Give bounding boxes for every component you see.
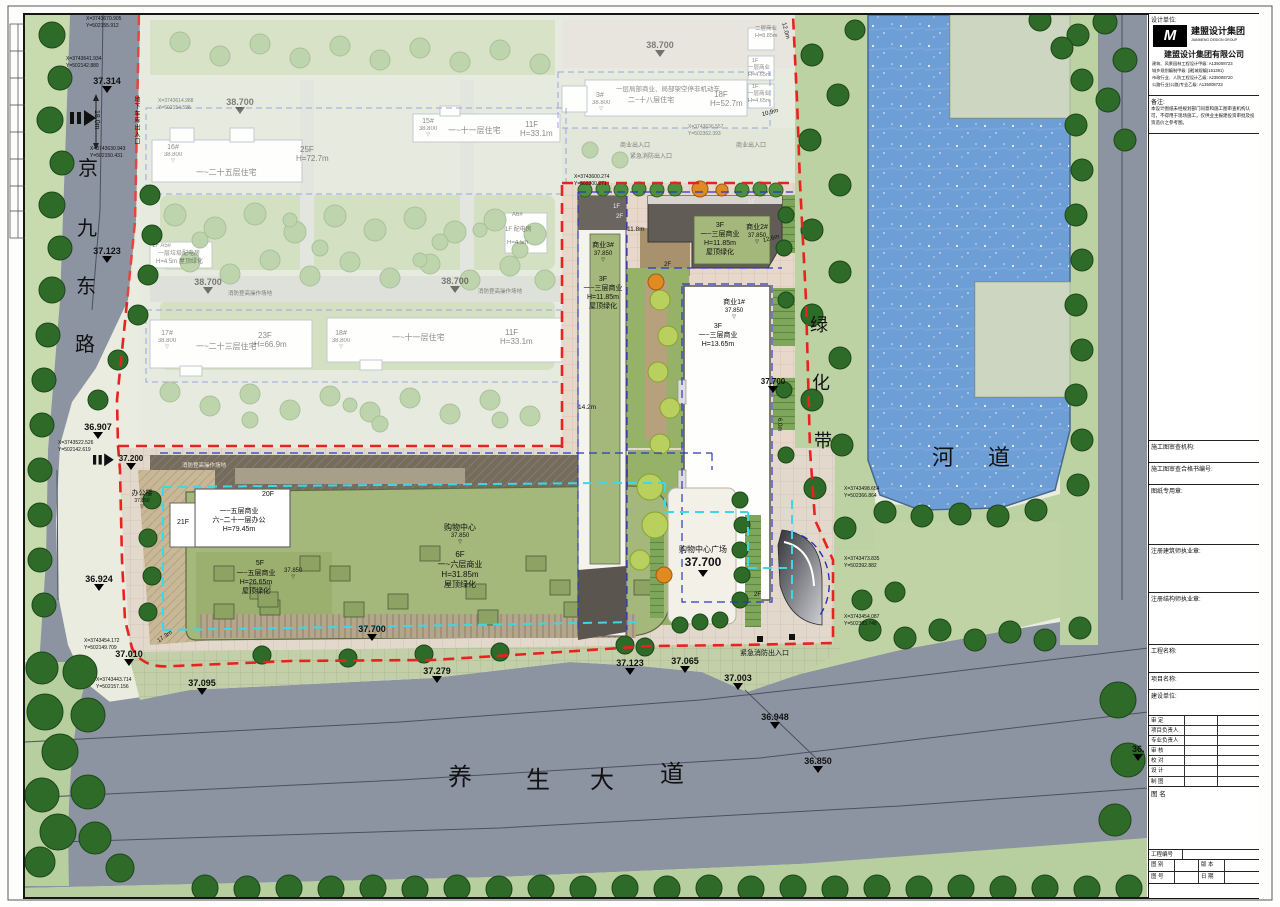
r18-elev: 38.800 <box>326 338 356 349</box>
dim-142m: 14.2m <box>578 404 596 411</box>
coord-y: Y=502142.619 <box>58 447 93 454</box>
title-block-blank <box>1149 134 1259 441</box>
r17-elev: 38.800 <box>152 338 182 349</box>
fire-entrance-label: 紧急消防出入口 <box>740 650 789 658</box>
elevation-36948: 36.948 <box>753 712 797 729</box>
road-name-char: 路 <box>75 334 95 357</box>
floor-tag-2f: 2F <box>616 214 623 221</box>
r18-no: 18# <box>326 330 356 338</box>
green-belt-char: 带 <box>814 431 832 452</box>
garage-entrance-label: 地下车库出入口 <box>132 96 139 160</box>
road-name-char: 九 <box>77 218 97 241</box>
m5-roof: 屋顶绿化 <box>216 588 296 596</box>
mall-floors: 6F <box>420 550 500 559</box>
shangye3-spot-elev: 37.850 <box>578 251 628 262</box>
r17-floors: 23F <box>258 331 272 340</box>
road-name-char: 道 <box>660 762 684 790</box>
elevation-37700: 37.700 <box>350 624 394 641</box>
dim-118m: 11.8m <box>627 226 645 233</box>
road-name-char: 京 <box>78 158 98 181</box>
project-no-row: 工程编号 <box>1149 850 1259 860</box>
biz-entrance-label: 商业出入口 <box>736 143 766 150</box>
river-char: 道 <box>988 445 1010 470</box>
title-block-design-unit: 设计单位: M 建盟设计集团 JIANMENG DESIGN GROUP 建盟设… <box>1149 14 1259 96</box>
dim-6m: 6.0m <box>775 418 782 431</box>
elevation-38700: 38.700 <box>638 40 682 57</box>
sign-row-label: 设 计 <box>1149 766 1185 775</box>
coord-x: X=3743641.934 <box>66 56 101 63</box>
elevation-37123b: 37.123 <box>608 658 652 675</box>
fire-ops-area-label: 消防登高操作场地 <box>228 291 272 297</box>
r16-no: 16# <box>158 144 188 152</box>
coord-y: Y=502155.912 <box>86 23 121 30</box>
office-21f: 21F <box>177 519 189 527</box>
shangye3-floors: 3F <box>578 276 628 284</box>
road-name-char: 生 <box>526 768 550 796</box>
fire-ops-area-label: 消防登高操作场地 <box>182 463 226 469</box>
r15-elev: 38.800 <box>413 126 443 137</box>
project-name-field: 工程名称: <box>1149 645 1259 673</box>
m5-height: H=26.65m <box>216 579 296 587</box>
shangye1-use: 一~三层商业 <box>688 332 748 340</box>
floor-tag-2f: 2F <box>664 262 671 269</box>
elevation-38700: 38.700 <box>186 277 230 294</box>
elevation-36850: 36.850 <box>796 756 840 773</box>
office-20f: 20F <box>262 491 274 499</box>
r18-use: 一~十一层住宅 <box>392 333 445 342</box>
coord-label: X=3743522.526Y=502142.619 <box>58 440 93 453</box>
company-logo-name: 建盟设计集团 <box>1191 26 1245 36</box>
shop1-use: 一层商业 <box>748 65 770 71</box>
r16-floors: 25F <box>300 145 314 154</box>
date-label: 日 期 <box>1199 872 1225 883</box>
sign-row-label: 校 对 <box>1149 756 1185 765</box>
r16-use: 一~二十五层住宅 <box>196 168 257 177</box>
coord-x: X=3743473.835 <box>844 556 879 563</box>
road-width-dim: 18.0m <box>92 110 100 129</box>
shangye1-no: 商业1# <box>712 299 756 307</box>
notes-label: 备注: <box>1151 97 1257 106</box>
a6-no: A6# <box>512 212 523 219</box>
drawing-name-field: 图 名 <box>1149 787 1259 850</box>
company-logo: M <box>1153 25 1187 47</box>
shop1-floors: 1F <box>752 58 758 64</box>
coord-label: X=3743454.087Y=502393.748 <box>844 614 879 627</box>
site-plan-sheet: 京 九 东 路 养 生 大 道 绿 化 带 河 道 地下车库出入口 18.0m … <box>0 0 1280 907</box>
title-block-notes: 备注: 本设计图纸未经规划部门同意和施工图审查机构认可，不得用于现场施工，仅供业… <box>1149 96 1259 134</box>
r15-use: 一~十一层住宅 <box>448 126 501 135</box>
elevation-37700-east: 37.700 <box>753 377 793 393</box>
no-date-row: 图 号 日 期 <box>1149 872 1259 884</box>
elevation-37010: 37.010 <box>107 649 151 666</box>
coord-y: Y=502154.598 <box>158 105 193 112</box>
coord-x: X=3743454.172 <box>84 638 119 645</box>
r3-use1: 一层局部商业、局部架空停非机动车 <box>616 86 720 93</box>
shop1b-use: 一层商业 <box>748 91 770 97</box>
coord-y: Y=502362.393 <box>688 131 723 138</box>
architect-seal-field: 注册建筑师执业章: <box>1149 545 1259 593</box>
floor-tag-2f: 2F <box>754 592 761 599</box>
coord-label: X=3743670.905Y=502155.912 <box>86 16 121 29</box>
review-org-field: 施工图审查机构: <box>1149 441 1259 463</box>
r15-height: H=33.1m <box>520 129 553 138</box>
mall-name: 购物中心 <box>420 523 500 532</box>
shangye1-height: H=13.65m <box>688 341 748 349</box>
structural-seal-field: 注册结构师执业章: <box>1149 593 1259 645</box>
company-logo-sub: JIANMENG DESIGN GROUP <box>1191 38 1237 42</box>
shop1b-floors: 1F <box>752 84 758 90</box>
elevation-38700: 38.700 <box>218 97 262 114</box>
green-belt-char: 绿 <box>810 315 828 336</box>
office-height: H=79.45m <box>196 526 282 534</box>
floor-tag-1f: 1F <box>748 200 755 207</box>
shangye2-no: 商业2# <box>735 224 779 232</box>
coord-label: X=3743630.943Y=502150.431 <box>90 146 125 159</box>
coord-label: X=3743473.835Y=502392.882 <box>844 556 879 569</box>
r15-floors: 11F <box>525 120 538 129</box>
coord-label: X=3743443.714Y=502157.156 <box>96 677 131 690</box>
coord-x: X=3743443.714 <box>96 677 131 684</box>
seal-field: 图纸专用章: <box>1149 485 1259 545</box>
r3-elev: 38.800 <box>592 100 610 111</box>
cert-line: 城乡规划编制甲级: [建]城规编(161391) <box>1152 69 1224 74</box>
river-char: 河 <box>932 445 954 470</box>
office-use1: 一~五层商业 <box>196 508 282 516</box>
shop1-height: H=4.65m <box>748 72 770 78</box>
r17-use: 一~二十三层住宅 <box>196 342 257 351</box>
r15-no: 15# <box>413 118 443 126</box>
shangye3-roof: 屋顶绿化 <box>578 303 628 311</box>
coord-label: X=3743636.557Y=502362.393 <box>688 124 723 137</box>
coord-y: Y=502392.882 <box>844 563 879 570</box>
elevation-37123: 37.123 <box>85 246 129 263</box>
coord-label: X=3743641.934Y=502142.889 <box>66 56 101 69</box>
r18-height: H=33.1m <box>500 337 533 346</box>
shop1b-height: H=4.65m <box>748 98 770 104</box>
elevation-36907: 36.907 <box>76 422 120 439</box>
a5-height: H=4.5m 屋顶绿化 <box>156 259 203 266</box>
coord-x: X=3743600.274 <box>574 174 609 181</box>
coord-label: X=3743614.988Y=502154.598 <box>158 98 193 111</box>
sign-row-label: 项目负责人 <box>1149 726 1185 735</box>
m5-spot-elev: 37.850 <box>284 568 302 579</box>
elevation-37314: 37.314 <box>85 76 129 93</box>
m5-floors: 5F <box>240 560 280 568</box>
cert-line: 建筑、风景园林工程设计甲级: A135008723 <box>1152 62 1233 67</box>
sign-row-label: 审 定 <box>1149 716 1185 725</box>
signature-table: 审 定 项目负责人 专业负责人 审 核 校 对 设 计 制 图 <box>1149 716 1259 787</box>
coord-x: X=3743498.654 <box>844 486 879 493</box>
shangye2-roof: 屋顶绿化 <box>690 249 750 257</box>
coord-label: X=3743498.654Y=502366.864 <box>844 486 879 499</box>
mall-use: 一~六层商业 <box>420 560 500 569</box>
road-name-char: 大 <box>590 768 614 796</box>
shangye3-no: 商业3# <box>578 242 628 250</box>
elevation-37095: 37.095 <box>180 678 224 695</box>
clipped-elevation: 36. <box>1132 744 1145 761</box>
office-use2: 六~二十一层办公 <box>196 517 282 525</box>
r18-floors: 11F <box>505 328 518 337</box>
shangye1-floors: 3F <box>688 323 748 331</box>
plaza-name: 购物中心广场 <box>663 545 743 554</box>
coord-y: Y=502393.748 <box>844 621 879 628</box>
type-label: 图 别 <box>1149 860 1175 871</box>
r16-height: H=72.7m <box>296 154 329 163</box>
fire-ops-area-label: 消防登高操作场地 <box>478 289 522 295</box>
shop2-height: H=8.85m <box>755 33 777 39</box>
r17-no: 17# <box>152 330 182 338</box>
type-version-row: 图 别 版 本 <box>1149 860 1259 872</box>
road-name-char: 东 <box>76 276 96 299</box>
cert-line: 市政行业、人防工程设计乙级: A235008720 <box>1152 76 1233 81</box>
elevation-37065: 37.065 <box>663 656 707 673</box>
a6-use: 1F 配电房 <box>505 227 532 234</box>
project-no-label: 工程编号 <box>1149 850 1183 859</box>
plaza-elevation: 37.700 <box>663 556 743 577</box>
r3-no: 3# <box>596 92 604 100</box>
sign-row-label: 专业负责人 <box>1149 736 1185 745</box>
site-plan-drawing <box>0 0 1280 907</box>
floor-tag-1f: 1F <box>613 204 620 211</box>
drawing-no-label: 图 号 <box>1149 872 1175 883</box>
coord-y: Y=502142.889 <box>66 63 101 70</box>
biz-entrance-label: 商业出入口 <box>620 143 650 150</box>
coord-y: Y=502157.156 <box>96 684 131 691</box>
mall-roof: 屋顶绿化 <box>420 580 500 589</box>
notes-text: 本设计图纸未经规划部门同意和施工图审查机构认可，不得用于现场施工，仅供业主报建投… <box>1151 106 1257 126</box>
r3-height: H=52.7m <box>710 99 743 108</box>
coord-x: X=3743522.526 <box>58 440 93 447</box>
coord-x: X=3743636.557 <box>688 124 723 131</box>
fire-entrance-label: 紧急消防出入口 <box>630 154 672 161</box>
coord-y: Y=502300.271 <box>574 181 609 188</box>
coord-y: Y=502149.709 <box>84 645 119 652</box>
shangye3-height: H=11.85m <box>578 294 628 302</box>
item-name-field: 项目名称: <box>1149 673 1259 690</box>
sign-row-label: 制 图 <box>1149 777 1185 787</box>
r16-elev: 38.800 <box>158 152 188 163</box>
title-block: 设计单位: M 建盟设计集团 JIANMENG DESIGN GROUP 建盟设… <box>1148 14 1259 898</box>
coord-x: X=3743670.905 <box>86 16 121 23</box>
coord-x: X=3743614.988 <box>158 98 193 105</box>
review-no-field: 施工图审查合格书编号: <box>1149 463 1259 485</box>
shangye1-spot-elev: 37.850 <box>712 308 756 319</box>
elevation-37279: 37.279 <box>415 666 459 683</box>
elevation-36924: 36.924 <box>77 574 121 591</box>
coord-label: X=3743600.274Y=502300.271 <box>574 174 609 187</box>
coord-y: Y=502150.431 <box>90 153 125 160</box>
shangye3-use: 一~三层商业 <box>578 285 628 293</box>
a6-height: H=4.5m <box>507 240 528 247</box>
elevation-37200: 37.200 <box>111 454 151 470</box>
coord-x: X=3743630.943 <box>90 146 125 153</box>
road-name-char: 养 <box>448 765 472 793</box>
r3-use2: 二~十八层住宅 <box>628 97 674 105</box>
r17-height: H=66.9m <box>254 340 287 349</box>
green-belt-char: 化 <box>812 373 830 394</box>
coord-y: Y=502366.864 <box>844 493 879 500</box>
shop2-use: 二层商业 <box>755 26 777 32</box>
coord-label: X=3743454.172Y=502149.709 <box>84 638 119 651</box>
mall-height: H=31.85m <box>420 570 500 579</box>
elevation-37003: 37.003 <box>716 673 760 690</box>
cert-line: 公路行业(公路)专业乙级: A135008723 <box>1152 83 1223 88</box>
client-field: 建设单位: <box>1149 690 1259 716</box>
mall-spot-elev: 37.850 <box>420 533 500 544</box>
a5-use: 一层垃圾配电房 <box>158 251 200 258</box>
r3-floors: 18F <box>714 90 728 99</box>
design-unit-label: 设计单位: <box>1151 15 1257 24</box>
office-spot-elev: 37.850 <box>122 499 162 509</box>
office-no: 办公楼 <box>122 490 162 498</box>
plan-canvas <box>25 9 1148 902</box>
a5-no: 1F A5# <box>152 243 171 250</box>
elevation-38700: 38.700 <box>433 276 477 293</box>
coord-x: X=3743454.087 <box>844 614 879 621</box>
sign-row-label: 审 核 <box>1149 746 1185 755</box>
version-label: 版 本 <box>1199 860 1225 871</box>
company-name: 建盟设计集团有限公司 <box>1149 50 1259 59</box>
